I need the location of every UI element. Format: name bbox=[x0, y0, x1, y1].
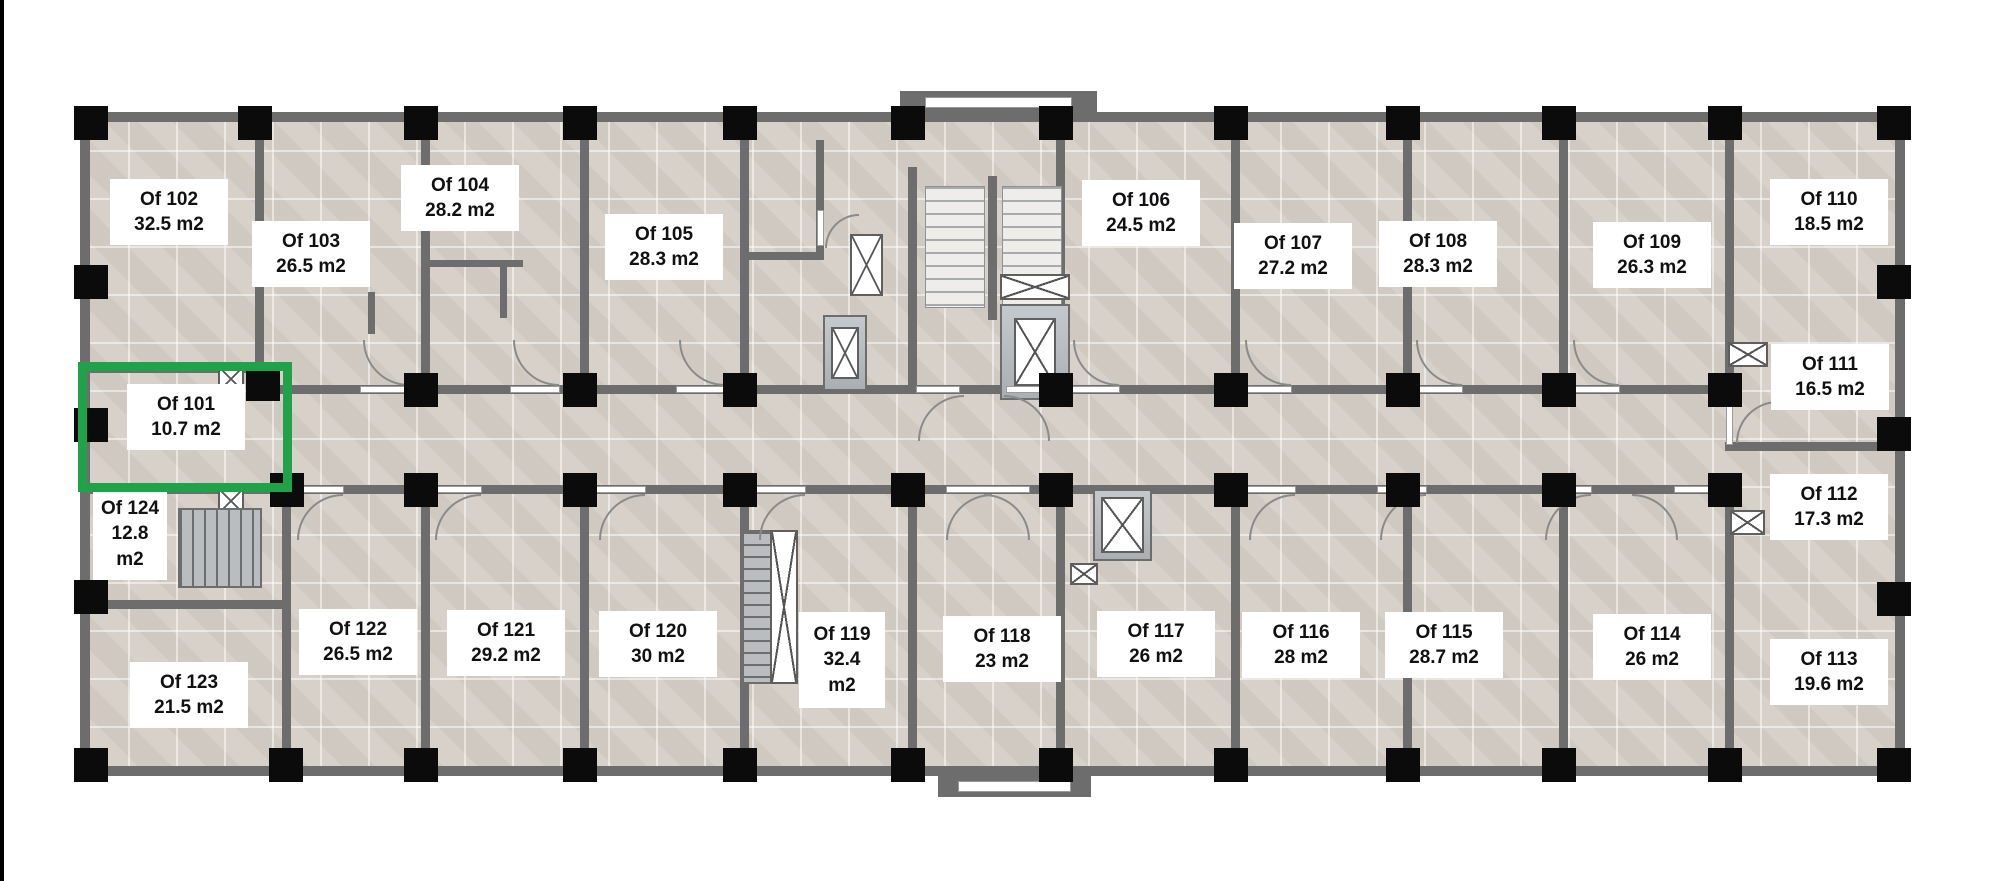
door-opening bbox=[596, 486, 646, 493]
wall bbox=[908, 167, 917, 394]
column bbox=[1708, 373, 1742, 407]
column bbox=[723, 748, 757, 782]
room-label-of-104[interactable]: Of 104 28.2 m2 bbox=[401, 165, 519, 231]
room-area: 16.5 m2 bbox=[1795, 377, 1865, 402]
door-arc bbox=[599, 494, 645, 540]
room-label-of-108[interactable]: Of 108 28.3 m2 bbox=[1379, 221, 1497, 287]
room-number: Of 103 bbox=[282, 229, 340, 254]
wall bbox=[80, 600, 291, 609]
column bbox=[74, 106, 108, 140]
room-label-of-109[interactable]: Of 109 26.3 m2 bbox=[1593, 222, 1711, 288]
column bbox=[563, 473, 597, 507]
room-label-of-112[interactable]: Of 112 17.3 m2 bbox=[1770, 474, 1888, 540]
column bbox=[1542, 748, 1576, 782]
room-label-of-114[interactable]: Of 114 26 m2 bbox=[1593, 614, 1711, 680]
column bbox=[723, 373, 757, 407]
room-number: Of 102 bbox=[140, 187, 198, 212]
room-number: Of 109 bbox=[1623, 230, 1681, 255]
room-area: 21.5 m2 bbox=[154, 695, 224, 720]
stairs-icon bbox=[925, 186, 985, 308]
door-arc bbox=[918, 395, 964, 441]
column bbox=[1039, 473, 1073, 507]
wall bbox=[740, 252, 824, 260]
column bbox=[404, 473, 438, 507]
room-area: 32.5 m2 bbox=[134, 212, 204, 237]
escalator-icon bbox=[770, 530, 798, 684]
column bbox=[1708, 748, 1742, 782]
room-area: 26.5 m2 bbox=[323, 642, 393, 667]
wall bbox=[580, 112, 589, 394]
room-number: Of 124 bbox=[101, 496, 159, 521]
column bbox=[1214, 473, 1248, 507]
partial-wall bbox=[500, 260, 507, 318]
door-opening bbox=[432, 486, 482, 493]
room-area: 28.7 m2 bbox=[1409, 645, 1479, 670]
shaft-icon bbox=[1000, 274, 1070, 300]
room-number: Of 112 bbox=[1800, 482, 1857, 507]
corridor-wall-top bbox=[250, 385, 1734, 394]
room-area: 26.3 m2 bbox=[1617, 255, 1687, 280]
shaft-icon bbox=[1070, 563, 1098, 585]
stairs-icon bbox=[742, 530, 772, 684]
room-label-of-110[interactable]: Of 110 18.5 m2 bbox=[1770, 179, 1888, 245]
room-number: Of 116 bbox=[1272, 620, 1329, 645]
door-opening bbox=[817, 210, 824, 246]
door-arc bbox=[1416, 340, 1462, 386]
room-area: 26.5 m2 bbox=[276, 254, 346, 279]
column bbox=[1877, 582, 1911, 616]
room-number: Of 113 bbox=[1800, 647, 1857, 672]
wall bbox=[421, 485, 430, 776]
door-opening bbox=[510, 386, 560, 393]
room-number: Of 108 bbox=[1409, 229, 1467, 254]
room-label-of-121[interactable]: Of 121 29.2 m2 bbox=[447, 610, 565, 676]
room-area: 18.5 m2 bbox=[1794, 212, 1864, 237]
floor-plan-page: Of 102 32.5 m2 Of 103 26.5 m2 Of 104 28.… bbox=[0, 0, 2000, 881]
room-label-of-116[interactable]: Of 116 28 m2 bbox=[1242, 612, 1360, 678]
room-area: 30 m2 bbox=[631, 644, 685, 669]
room-number: Of 114 bbox=[1623, 622, 1680, 647]
column bbox=[1542, 106, 1576, 140]
room-area: 26 m2 bbox=[1625, 647, 1679, 672]
room-number: Of 118 bbox=[973, 624, 1030, 649]
wall bbox=[282, 485, 291, 776]
room-label-of-123[interactable]: Of 123 21.5 m2 bbox=[130, 662, 248, 728]
room-label-of-115[interactable]: Of 115 28.7 m2 bbox=[1385, 612, 1503, 678]
column bbox=[563, 748, 597, 782]
room-label-of-124[interactable]: Of 124 12.8 m2 bbox=[93, 488, 167, 580]
room-number: Of 110 bbox=[1800, 187, 1857, 212]
partial-wall bbox=[421, 260, 523, 267]
room-area: 28 m2 bbox=[1274, 645, 1328, 670]
room-area: 26 m2 bbox=[1129, 644, 1183, 669]
room-number: Of 104 bbox=[431, 173, 489, 198]
door-opening bbox=[676, 386, 726, 393]
room-number: Of 106 bbox=[1112, 188, 1170, 213]
room-area: 19.6 m2 bbox=[1794, 672, 1864, 697]
door-opening bbox=[1070, 386, 1120, 393]
floor-plan: Of 102 32.5 m2 Of 103 26.5 m2 Of 104 28.… bbox=[80, 112, 1905, 776]
door-opening bbox=[946, 486, 1030, 493]
room-number: Of 121 bbox=[477, 618, 535, 643]
column bbox=[404, 748, 438, 782]
room-area: 23 m2 bbox=[975, 649, 1029, 674]
column bbox=[1214, 106, 1248, 140]
room-label-of-120[interactable]: Of 120 30 m2 bbox=[599, 611, 717, 677]
room-number: Of 123 bbox=[160, 670, 218, 695]
room-area: 17.3 m2 bbox=[1794, 507, 1864, 532]
room-area: 29.2 m2 bbox=[471, 643, 541, 668]
column bbox=[238, 106, 272, 140]
room-area: 12.8 m2 bbox=[107, 521, 153, 571]
room-area: 28.2 m2 bbox=[425, 198, 495, 223]
column bbox=[1386, 106, 1420, 140]
door-arc bbox=[1245, 340, 1291, 386]
column bbox=[1877, 748, 1911, 782]
column bbox=[1386, 748, 1420, 782]
elevator-car-icon bbox=[831, 327, 859, 379]
column bbox=[74, 580, 108, 614]
column bbox=[891, 748, 925, 782]
room-number: Of 107 bbox=[1264, 231, 1322, 256]
door-arc bbox=[759, 494, 805, 540]
door-opening bbox=[1242, 386, 1292, 393]
door-opening bbox=[756, 486, 806, 493]
column bbox=[1708, 106, 1742, 140]
column bbox=[1542, 373, 1576, 407]
door-arc bbox=[513, 340, 559, 386]
room-label-of-119[interactable]: Of 119 32.4 m2 bbox=[799, 612, 885, 708]
column bbox=[723, 106, 757, 140]
door-arc bbox=[435, 494, 481, 540]
column bbox=[1386, 373, 1420, 407]
door-arc bbox=[825, 214, 859, 248]
column bbox=[404, 106, 438, 140]
room-number: Of 119 bbox=[813, 622, 870, 647]
door-arc bbox=[1573, 340, 1619, 386]
room-label-of-111[interactable]: Of 111 16.5 m2 bbox=[1771, 344, 1889, 410]
stairs-icon bbox=[178, 508, 262, 588]
column bbox=[74, 265, 108, 299]
room-label-of-105[interactable]: Of 105 28.3 m2 bbox=[605, 214, 723, 280]
column bbox=[1877, 106, 1911, 140]
door-arc bbox=[1249, 494, 1295, 540]
room-label-of-106[interactable]: Of 106 24.5 m2 bbox=[1082, 180, 1200, 246]
wall bbox=[421, 112, 430, 394]
column bbox=[723, 473, 757, 507]
door-arc bbox=[984, 494, 1030, 540]
door-opening bbox=[1570, 386, 1620, 393]
entrance-bottom-door bbox=[958, 781, 1071, 792]
shaft-icon bbox=[1730, 510, 1765, 535]
door-arc bbox=[363, 340, 409, 386]
room-label-of-117[interactable]: Of 117 26 m2 bbox=[1097, 611, 1215, 677]
room-number: Of 122 bbox=[329, 617, 387, 642]
wall bbox=[908, 485, 917, 776]
stair-divider-wall bbox=[988, 176, 997, 320]
room-number: Of 120 bbox=[629, 619, 687, 644]
wall bbox=[1231, 485, 1240, 776]
column bbox=[891, 106, 925, 140]
column bbox=[891, 473, 925, 507]
column bbox=[1214, 373, 1248, 407]
room-label-of-122[interactable]: Of 122 26.5 m2 bbox=[299, 609, 417, 675]
room-number: Of 105 bbox=[635, 222, 693, 247]
column bbox=[269, 748, 303, 782]
room-label-of-107[interactable]: Of 107 27.2 m2 bbox=[1234, 223, 1352, 289]
door-opening bbox=[360, 386, 410, 393]
room-label-of-118[interactable]: Of 118 23 m2 bbox=[943, 616, 1061, 682]
room-area: 28.3 m2 bbox=[629, 247, 699, 272]
room-label-of-103[interactable]: Of 103 26.5 m2 bbox=[252, 221, 370, 287]
door-opening bbox=[916, 386, 960, 393]
door-opening bbox=[1246, 486, 1296, 493]
room-label-of-102[interactable]: Of 102 32.5 m2 bbox=[110, 179, 228, 245]
column bbox=[404, 373, 438, 407]
column bbox=[1708, 473, 1742, 507]
room-number: Of 117 bbox=[1127, 619, 1184, 644]
column bbox=[1386, 473, 1420, 507]
room-number: Of 111 bbox=[1802, 352, 1858, 377]
column bbox=[1039, 106, 1073, 140]
room-label-of-113[interactable]: Of 113 19.6 m2 bbox=[1770, 639, 1888, 705]
column bbox=[1542, 473, 1576, 507]
wall bbox=[580, 485, 589, 776]
room-area: 28.3 m2 bbox=[1403, 254, 1473, 279]
column bbox=[74, 748, 108, 782]
column bbox=[1039, 373, 1073, 407]
column bbox=[563, 373, 597, 407]
shaft-icon bbox=[1728, 342, 1768, 367]
column bbox=[1877, 265, 1911, 299]
elevator-car-icon bbox=[1101, 497, 1144, 553]
door-arc bbox=[1073, 340, 1119, 386]
column bbox=[563, 106, 597, 140]
door-arc bbox=[1632, 494, 1678, 540]
room-area: 24.5 m2 bbox=[1106, 213, 1176, 238]
page-left-border bbox=[0, 0, 4, 881]
door-opening bbox=[1413, 386, 1463, 393]
column bbox=[1214, 748, 1248, 782]
room-area: 27.2 m2 bbox=[1258, 256, 1328, 281]
door-arc bbox=[679, 340, 725, 386]
column bbox=[1877, 417, 1911, 451]
wall bbox=[1559, 112, 1568, 394]
column bbox=[1039, 748, 1073, 782]
room-area: 32.4 m2 bbox=[816, 647, 868, 697]
selected-room-highlight bbox=[78, 362, 292, 492]
partial-wall bbox=[368, 292, 375, 334]
room-number: Of 115 bbox=[1415, 620, 1472, 645]
